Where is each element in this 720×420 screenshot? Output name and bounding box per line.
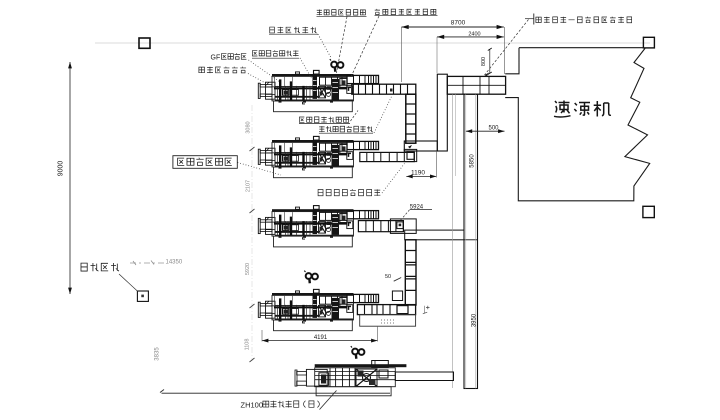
svg-text:1190: 1190 [411, 169, 425, 176]
svg-text:1108: 1108 [245, 339, 251, 351]
svg-text:3950: 3950 [471, 313, 477, 327]
svg-text:500: 500 [488, 125, 499, 131]
svg-text:8700: 8700 [451, 20, 466, 27]
svg-text:800: 800 [481, 57, 487, 66]
svg-text:ZH100: ZH100 [241, 400, 264, 409]
svg-text:4191: 4191 [314, 335, 328, 341]
svg-text:GF: GF [211, 55, 221, 62]
svg-text:3835: 3835 [155, 347, 161, 361]
svg-text:9000: 9000 [58, 161, 65, 177]
svg-text:3080: 3080 [246, 121, 252, 133]
svg-text:5920: 5920 [245, 263, 251, 275]
svg-text:2400: 2400 [468, 32, 480, 38]
svg-text:5850: 5850 [470, 154, 476, 168]
svg-text:14350: 14350 [166, 260, 183, 266]
svg-text:50: 50 [385, 274, 391, 280]
svg-text:2107: 2107 [246, 180, 252, 192]
